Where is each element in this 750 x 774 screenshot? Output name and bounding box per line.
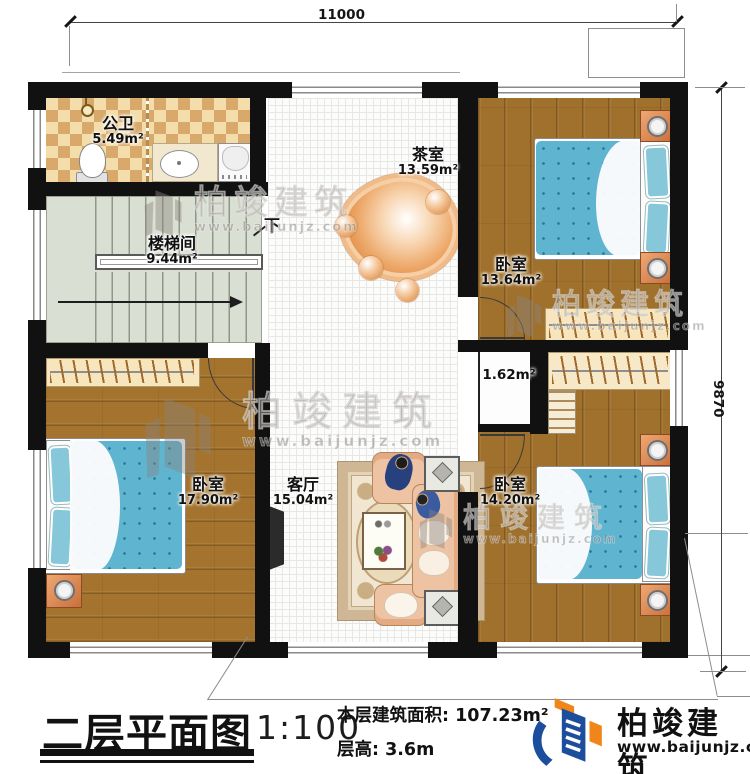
side-table-lamp <box>431 596 452 617</box>
wall <box>458 340 688 352</box>
extension-line <box>676 4 677 22</box>
toilet-bowl <box>79 143 106 178</box>
dimension-right-label: 9870 <box>710 380 726 418</box>
window <box>28 450 46 568</box>
room-area: 9.44m² <box>146 253 197 268</box>
title-underline-thick <box>40 749 254 756</box>
tea-stool <box>426 190 450 214</box>
room-name: 茶室 <box>398 146 458 164</box>
watermark-url: www.baijunjz.com <box>194 220 359 236</box>
watermark-logo-icon <box>134 390 218 482</box>
porch-line <box>685 533 748 534</box>
room-name: 公卫 <box>92 115 143 133</box>
watermark-url: www.baijunjz.com <box>242 432 443 451</box>
nightstand <box>640 252 674 284</box>
title-underline-thin <box>40 760 254 763</box>
eave-line <box>62 72 460 73</box>
stair-direction-line <box>58 301 232 303</box>
brand-logo <box>527 692 611 774</box>
side-table <box>424 590 460 626</box>
watermark: 柏竣建筑 www.baijunjz.com <box>416 504 618 552</box>
room-area: 13.59m² <box>398 164 458 179</box>
wall <box>28 82 46 658</box>
watermark-name: 柏竣建筑 <box>194 186 359 220</box>
room-area: 17.90m² <box>178 494 238 509</box>
window <box>670 350 688 426</box>
nightstand-lamp <box>54 580 75 601</box>
window <box>498 82 640 98</box>
room-name: 卧室 <box>480 476 540 494</box>
hall-nook-floor <box>478 352 530 424</box>
room-name: 卧室 <box>481 256 541 274</box>
eave-line <box>688 655 750 656</box>
porch-diagonal <box>684 538 718 696</box>
wall <box>250 82 266 196</box>
floor-area-text: 本层建筑面积: 107.23m² <box>337 702 549 727</box>
coffee-table-cups <box>374 520 392 528</box>
wall <box>478 424 530 432</box>
floor-plan-page: 11000 9870 公卫 5.49m² 楼梯间 9.44m² 茶室 13.59… <box>0 0 750 774</box>
window <box>292 82 422 98</box>
dimension-top-label: 11000 <box>318 7 365 23</box>
window <box>70 642 212 658</box>
watermark-logo-icon <box>503 290 543 340</box>
nightstand <box>640 584 674 616</box>
nightstand <box>46 574 82 608</box>
room-label-tea-room: 茶室 13.59m² <box>398 146 458 178</box>
washing-machine-lid <box>222 146 249 171</box>
window <box>28 210 46 320</box>
window <box>28 110 46 168</box>
bed-bottom-left-sheet <box>70 440 120 570</box>
watermark: 柏竣建筑 www.baijunjz.com <box>503 290 707 340</box>
extension-line <box>69 26 70 66</box>
nightstand-lamp <box>647 116 668 137</box>
watermark-name: 柏竣建筑 <box>552 290 707 319</box>
watermark-url: www.baijunjz.com <box>463 532 618 547</box>
pillow <box>645 527 671 578</box>
terrace-outline <box>588 28 685 78</box>
tv <box>269 506 284 570</box>
extension-line <box>700 671 746 672</box>
tea-stool <box>359 256 383 280</box>
watermark-url: www.baijunjz.com <box>552 319 707 334</box>
washing-machine-buttons <box>222 175 247 179</box>
watermark: 柏竣建筑 www.baijunjz.com <box>140 186 359 238</box>
brand-logo-icon <box>527 692 611 772</box>
floor-height-text: 层高: 3.6m <box>337 736 434 761</box>
window <box>288 642 428 658</box>
wall <box>458 97 478 297</box>
pillow <box>645 473 671 524</box>
dimension-line-top <box>70 22 677 23</box>
stair-direction-arrowhead <box>230 296 243 308</box>
watermark-name: 柏竣建筑 <box>242 392 443 432</box>
watermark-logo-icon <box>140 186 184 238</box>
extension-line <box>695 87 745 88</box>
room-area: 5.49m² <box>92 133 143 148</box>
nightstand-lamp <box>647 258 668 279</box>
brand-name: 柏竣建筑 <box>617 698 750 774</box>
porch-line <box>717 696 750 697</box>
wall <box>255 343 270 642</box>
watermark-name: 柏竣建筑 <box>463 504 618 532</box>
room-label-bedroom-top-right: 卧室 13.64m² <box>481 256 541 288</box>
room-label-hall-nook: 1.62m² <box>482 368 535 383</box>
nightstand-lamp <box>647 590 668 611</box>
watermark-logo-icon <box>416 504 454 552</box>
sink-drain <box>177 161 181 165</box>
brand-website: www.baijunjz.com <box>617 738 750 756</box>
closet-hangers <box>552 356 668 384</box>
room-area: 13.64m² <box>481 274 541 289</box>
tea-stool <box>396 279 419 302</box>
room-area: 15.04m² <box>273 494 333 509</box>
pillow <box>644 145 671 198</box>
window <box>497 642 642 658</box>
coffee-table-flowers <box>372 544 394 562</box>
bathroom-partition <box>146 98 149 182</box>
sofa-cushion <box>418 550 450 576</box>
armchair-cushion <box>384 592 418 618</box>
wall <box>28 343 208 358</box>
wall <box>530 352 548 434</box>
room-label-bathroom: 公卫 5.49m² <box>92 115 143 147</box>
nightstand <box>640 434 674 466</box>
watermark: 柏竣建筑 www.baijunjz.com <box>134 390 443 482</box>
pillow <box>644 201 671 254</box>
wardrobe-hangers <box>50 360 194 383</box>
shoe-rack <box>548 390 576 434</box>
nightstand <box>640 110 674 142</box>
nightstand-lamp <box>647 440 668 461</box>
room-area: 1.62m² <box>482 368 535 383</box>
door-leaf <box>480 434 524 436</box>
room-label-stairwell: 楼梯间 9.44m² <box>146 235 197 267</box>
